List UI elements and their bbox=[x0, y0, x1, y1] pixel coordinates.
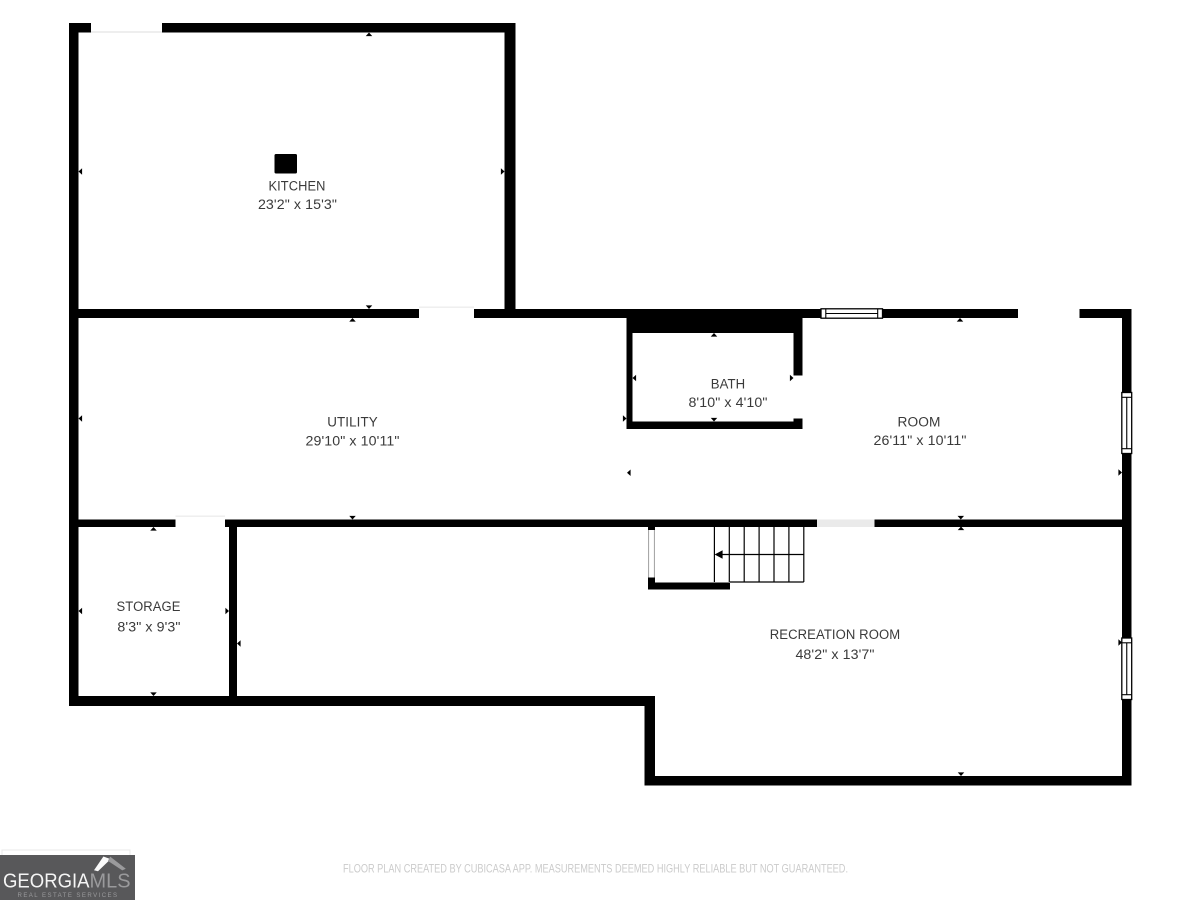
svg-text:MLS: MLS bbox=[90, 870, 131, 893]
svg-text:8'3" x 9'3": 8'3" x 9'3" bbox=[117, 620, 180, 636]
svg-text:RECREATION ROOM: RECREATION ROOM bbox=[770, 627, 901, 643]
svg-text:26'11" x 10'11": 26'11" x 10'11" bbox=[874, 433, 967, 449]
svg-text:REAL ESTATE SERVICES: REAL ESTATE SERVICES bbox=[18, 892, 119, 899]
svg-text:UTILITY: UTILITY bbox=[327, 415, 378, 431]
svg-text:8'10" x 4'10": 8'10" x 4'10" bbox=[688, 395, 767, 411]
svg-text:FLOOR PLAN CREATED BY CUBICASA: FLOOR PLAN CREATED BY CUBICASA APP. MEAS… bbox=[343, 863, 848, 876]
svg-text:BATH: BATH bbox=[711, 377, 746, 393]
svg-text:29'10" x 10'11": 29'10" x 10'11" bbox=[305, 434, 399, 450]
svg-text:ROOM: ROOM bbox=[898, 414, 941, 430]
svg-text:23'2" x 15'3": 23'2" x 15'3" bbox=[258, 197, 337, 213]
svg-text:48'2" x 13'7": 48'2" x 13'7" bbox=[795, 647, 874, 663]
svg-text:KITCHEN: KITCHEN bbox=[269, 179, 326, 195]
svg-text:GEORGIA: GEORGIA bbox=[3, 870, 90, 893]
svg-text:STORAGE: STORAGE bbox=[117, 599, 181, 615]
